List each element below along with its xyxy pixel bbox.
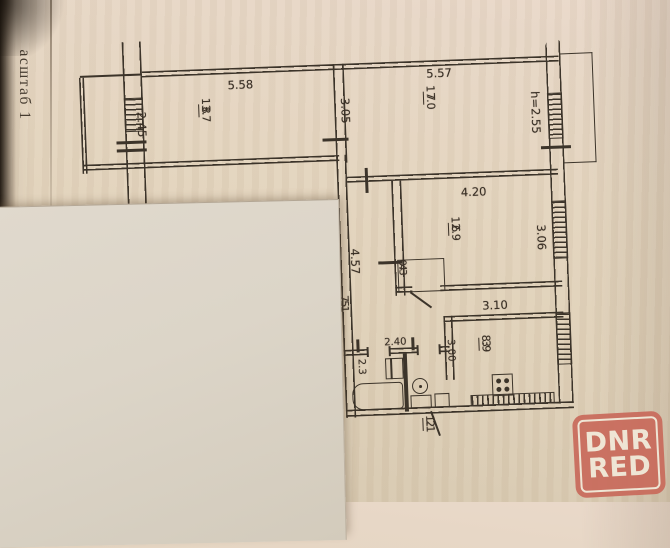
wall-top xyxy=(142,55,559,77)
wall-kitchen-top xyxy=(443,311,563,322)
door-jamb xyxy=(367,347,369,357)
room2-area: 1.1 xyxy=(423,415,436,433)
dim-room8-depth: 2.45 xyxy=(134,94,150,154)
dim-room6-depth: 3.06 xyxy=(533,207,549,267)
room3-area: 8.9 xyxy=(479,335,492,353)
wall-room8-bottom xyxy=(83,155,339,171)
window-kitchen xyxy=(555,312,572,365)
dim-room6-width: 4.20 xyxy=(448,184,499,200)
dim-room7-depth: 3.05 xyxy=(337,80,353,140)
watermark-line2: RED xyxy=(585,453,654,482)
room4-area: 0.3 xyxy=(395,260,406,276)
wall-room6-bottom-b xyxy=(440,281,562,292)
dim-kitchen-depth: 3.00 xyxy=(444,320,457,380)
dim-room7-width: 5.57 xyxy=(414,65,465,81)
loggia-outer-rail xyxy=(79,78,88,174)
balcony-room7 xyxy=(559,52,596,163)
dim-corridor-length: 4.57 xyxy=(347,231,363,291)
wall-room7-bottom xyxy=(347,169,558,183)
door-jamb-room7 xyxy=(365,168,369,193)
dim-bath-width: 2.40 xyxy=(370,336,420,349)
floorplan-photo: { "side_label": "асштаб 1", "watermark":… xyxy=(0,0,670,502)
dnr-red-watermark: DNR RED xyxy=(572,411,666,499)
room6-area: 12.9 xyxy=(449,216,462,241)
door-jamb xyxy=(438,344,440,354)
toilet-dot xyxy=(418,384,421,387)
window-room6 xyxy=(551,200,568,259)
room8-area: 13.7 xyxy=(199,98,212,123)
dim-room8-width: 5.58 xyxy=(215,77,266,93)
overlapping-paper-sheet xyxy=(0,199,347,548)
dim-ceiling-height: h=2.55 xyxy=(527,77,544,147)
toilet-tank xyxy=(410,395,431,409)
dim-bath-depth: 2.3 xyxy=(355,347,368,387)
watermark-text: DNR RED xyxy=(584,427,654,482)
washbasin xyxy=(385,358,404,380)
corner-shadow xyxy=(0,0,70,56)
door-leaf-room6 xyxy=(410,292,432,309)
dim-kitchen-width: 3.10 xyxy=(470,297,521,313)
wc-sink xyxy=(434,393,450,408)
room7-area: 17.0 xyxy=(424,85,437,110)
